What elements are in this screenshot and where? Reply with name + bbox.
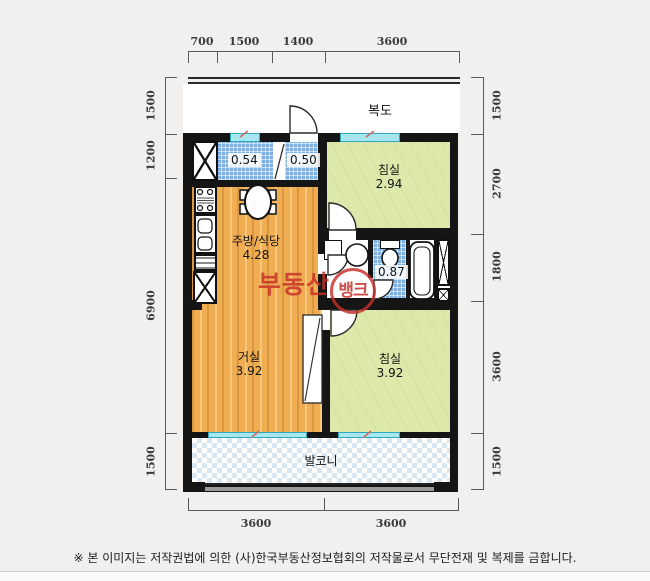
toilet-tank-icon <box>380 240 400 249</box>
bedroom2-area: 3.92 <box>340 366 440 380</box>
dim-right-1800: 1800 <box>491 237 504 297</box>
balcony-rail-line <box>192 483 450 485</box>
dim-bottom-3600b: 3600 <box>371 517 411 530</box>
basin-cabinet-icon <box>324 240 342 260</box>
dim-tick <box>165 178 177 179</box>
stove-icon <box>194 186 217 214</box>
wall-washroom-bathroom <box>368 238 373 278</box>
dim-right-2700: 2700 <box>491 154 504 214</box>
dim-line-left <box>165 77 166 490</box>
watermark-text: 부동산 <box>258 271 330 299</box>
wall-living-bedroom2 <box>322 330 330 433</box>
balcony-label: 발코니 <box>192 454 450 468</box>
dim-top-3600: 3600 <box>372 35 412 48</box>
dim-line-top <box>188 51 460 52</box>
floorplan-page: { "plan": { "corridor_label": "복도", "bal… <box>0 0 650 581</box>
dim-tick <box>471 433 483 434</box>
dim-tick <box>471 234 483 235</box>
dim-tick <box>471 134 483 135</box>
dim-top-1500: 1500 <box>224 35 264 48</box>
dim-tick <box>459 51 460 63</box>
corridor-floor <box>183 84 460 133</box>
wall-mid-left-stub <box>318 228 329 240</box>
wall-right <box>450 133 458 492</box>
dim-line-right <box>483 77 484 490</box>
balcony-corner-post-right <box>434 482 458 492</box>
dim-top-1400: 1400 <box>278 35 318 48</box>
kitchen-shaft-icon <box>193 271 217 304</box>
dim-right-1500a: 1500 <box>491 76 504 136</box>
dim-right-3600: 3600 <box>491 337 504 397</box>
dim-left-1500b: 1500 <box>145 432 158 492</box>
living-area: 3.92 <box>199 364 299 378</box>
corridor-label: 복도 <box>350 105 410 119</box>
window-bedroom1 <box>340 133 400 142</box>
duct-shaft-large-icon <box>437 239 450 286</box>
window-living-balcony <box>208 432 307 438</box>
bedroom1-area: 2.94 <box>349 177 429 191</box>
kitchen-label: 주방/식당 4.28 <box>206 234 306 262</box>
utility-area-label: 0.54 <box>228 153 261 167</box>
entrance-opening <box>290 133 318 142</box>
dim-tick <box>325 51 326 63</box>
dim-left-1200: 1200 <box>145 126 158 186</box>
dim-tick <box>217 51 218 63</box>
dim-tick <box>165 77 177 78</box>
bathroom-area-label: 0.87 <box>375 265 408 279</box>
watermark-badge: 뱅크 <box>330 268 376 314</box>
dim-tick <box>165 433 177 434</box>
balcony-rail-band <box>192 487 450 491</box>
dim-tick <box>272 51 273 63</box>
dim-tick <box>458 498 459 511</box>
living-label: 거실 3.92 <box>199 350 299 378</box>
dim-tick <box>188 51 189 63</box>
bedroom1-label: 침실 2.94 <box>349 163 429 191</box>
window-bedroom2-balcony <box>338 432 400 438</box>
dim-tick <box>471 489 483 490</box>
dim-bottom-3600a: 3600 <box>236 517 276 530</box>
dim-tick <box>165 489 177 490</box>
window-utility <box>230 133 260 142</box>
closet-shaft-icon <box>192 141 218 181</box>
dim-tick <box>188 498 189 511</box>
copyright-notice: ※ 본 이미지는 저작권법에 의한 (사)한국부동산정보협회의 저작물로서 무단… <box>0 549 650 566</box>
bedroom2-name: 침실 <box>340 352 440 366</box>
dim-tick <box>165 134 177 135</box>
dim-tick <box>471 77 483 78</box>
dim-right-1500b: 1500 <box>491 432 504 492</box>
corridor-inner-wall-line <box>188 82 460 84</box>
entry-area-label: 0.50 <box>287 153 320 167</box>
dim-tick <box>471 301 483 302</box>
kitchen-name: 주방/식당 <box>206 234 306 248</box>
wall-left <box>183 133 192 492</box>
wall-entry-bedroom1 <box>318 133 327 240</box>
kitchen-area: 4.28 <box>206 248 306 262</box>
bedroom1-name: 침실 <box>349 163 429 177</box>
dim-tick <box>324 498 325 511</box>
duct-shaft-small-icon <box>437 288 450 302</box>
living-name: 거실 <box>199 350 299 364</box>
footer-bottom-strip <box>0 572 650 581</box>
dim-left-6900: 6900 <box>145 276 158 336</box>
bedroom2-label: 침실 3.92 <box>340 352 440 380</box>
balcony-corner-post-left <box>183 482 205 492</box>
dim-top-700: 700 <box>182 35 222 48</box>
corridor-outer-wall-line <box>188 77 460 79</box>
